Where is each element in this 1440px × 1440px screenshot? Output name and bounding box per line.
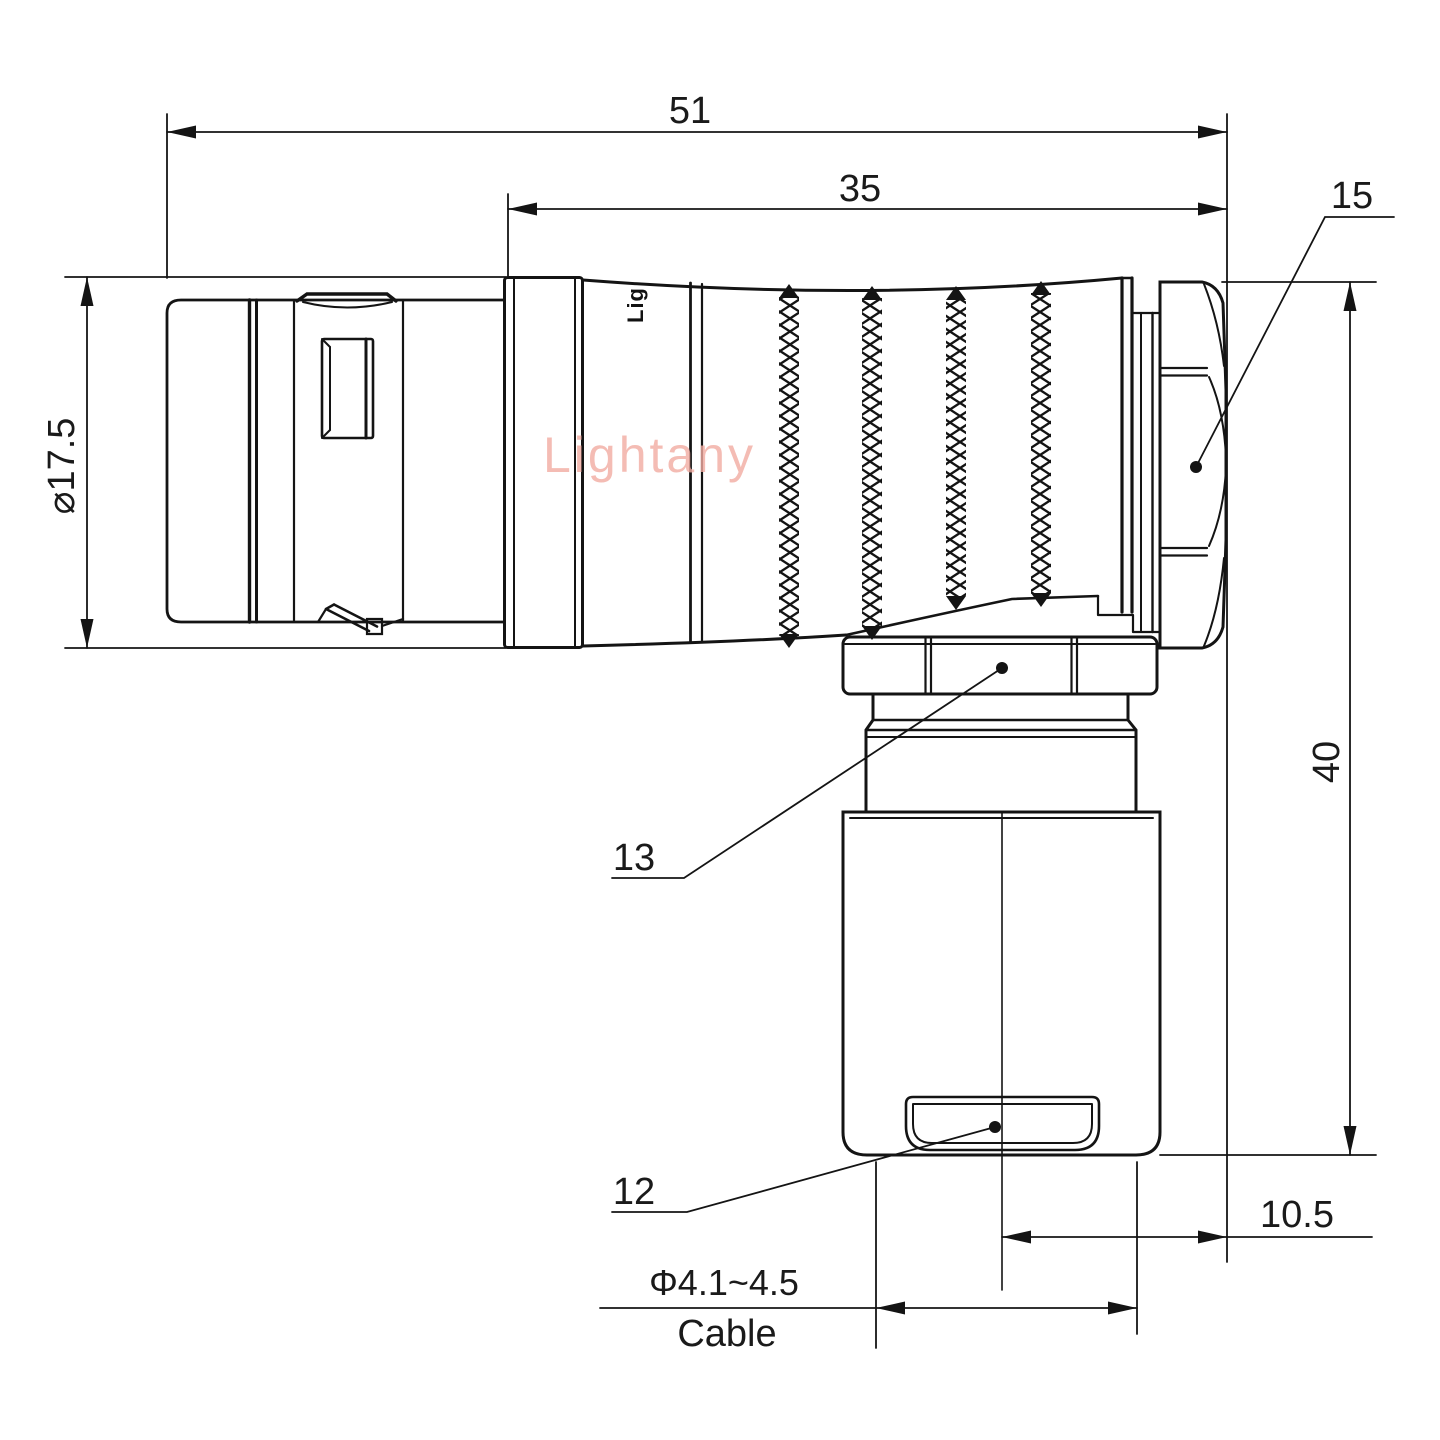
watermark-text: Lightany	[543, 430, 756, 480]
cable-word-label: Cable	[677, 1315, 776, 1353]
dim-offset-label: 10.5	[1260, 1196, 1334, 1234]
part-brand-print: Lig	[625, 287, 647, 323]
dim-height-label: 40	[1308, 741, 1346, 783]
socket-shell	[167, 294, 504, 634]
knurl-band	[1031, 281, 1051, 607]
leader-lines	[612, 217, 1394, 1212]
knurl-band	[779, 284, 799, 648]
knurl-bands	[779, 281, 1051, 648]
dim-body-length-label: 35	[839, 170, 881, 208]
elbow-assembly	[843, 637, 1160, 1290]
dim-overall-length-label: 51	[669, 92, 711, 130]
dim-nut-size-label: 15	[1331, 177, 1373, 215]
dim-cable-diameter-label: Φ4.1~4.5	[649, 1265, 799, 1301]
connector-line-drawing	[0, 0, 1440, 1440]
callout-13-label: 13	[613, 839, 655, 877]
knurl-band	[946, 286, 966, 610]
knurl-band	[862, 286, 882, 640]
callout-12-label: 12	[613, 1173, 655, 1211]
dim-shell-diameter-label: ⌀17.5	[43, 418, 81, 515]
technical-drawing-page: Lightany Lig 51 35 15 ⌀17.5 40 13 12 10.…	[0, 0, 1440, 1440]
